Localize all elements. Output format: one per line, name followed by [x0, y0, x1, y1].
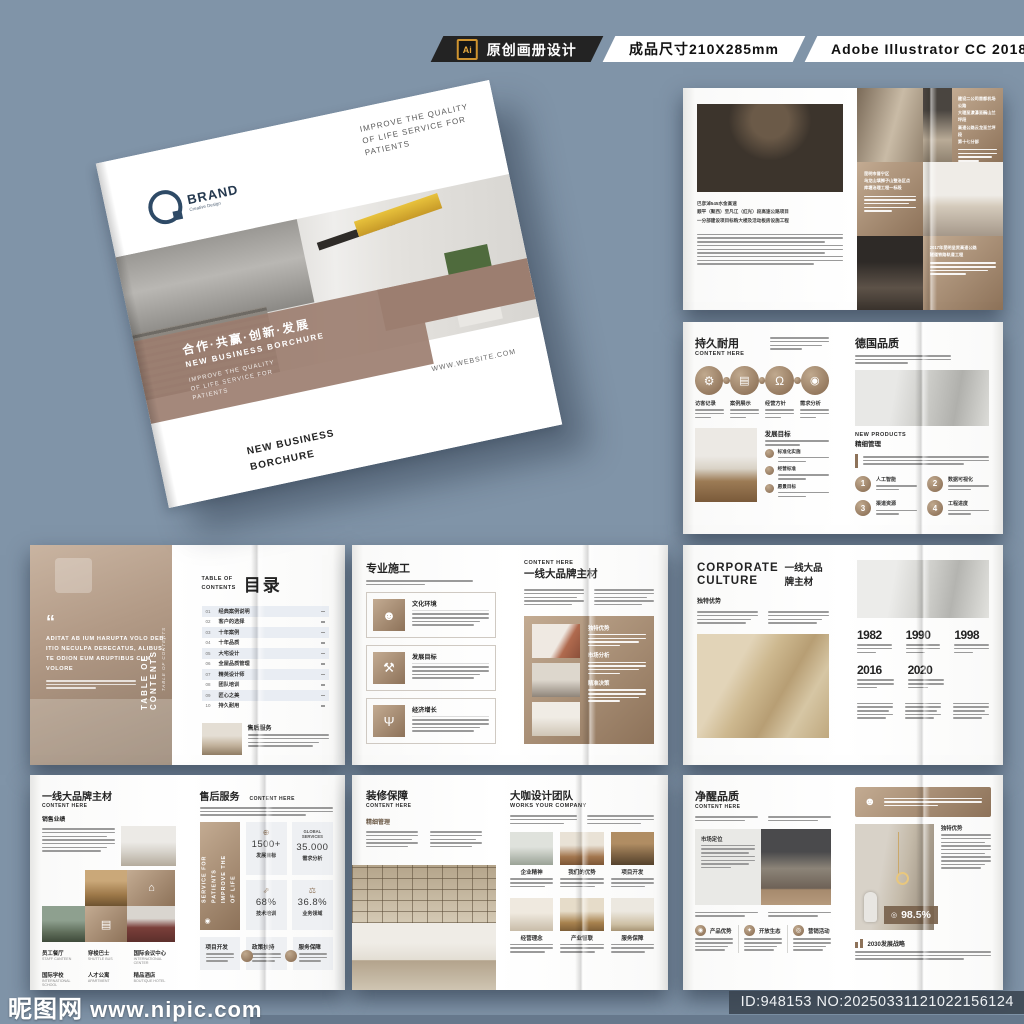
text-line-bar — [524, 593, 584, 595]
team-card: 产业智联 — [560, 898, 603, 955]
site-url: www.nipic.com — [90, 997, 262, 1022]
service-vertical-tile: SERVICE FOR PATIENTS IMPROVE THE OF LIFE… — [200, 822, 240, 930]
feature-title: 政策扶持 — [252, 943, 281, 951]
text-line-bar — [864, 203, 909, 205]
feature-box: ☻ 文化环境 — [366, 592, 496, 638]
text-line-bar — [430, 842, 482, 844]
text-line-bar — [876, 513, 899, 515]
site-watermark: 昵图网 www.nipic.com — [8, 989, 262, 1024]
toc-item[interactable]: 01经典案例说明 — [202, 606, 330, 617]
text-line-bar — [768, 816, 831, 818]
projects-left-page: 巴彦淖545水金高速 顺平（聚西）至凡江（红光）段高速公路项目 一分部建设项目标… — [683, 88, 857, 310]
leaf-icon: ✦ — [744, 925, 755, 936]
text-line-bar — [524, 604, 572, 606]
text-line-bar — [510, 815, 577, 817]
timeline-year: 2016 — [857, 663, 894, 677]
text-line-bar — [594, 593, 654, 595]
text-line-bar — [857, 687, 877, 689]
card-photo — [560, 898, 603, 931]
text-line-bar — [954, 652, 973, 654]
text-line-bar — [248, 734, 330, 736]
culture-title-en: CORPORATE CULTURE — [697, 562, 779, 588]
toc-item[interactable]: 07精英设计师 — [202, 669, 330, 680]
text-line-bar — [958, 153, 997, 155]
text-line-bar — [695, 915, 745, 917]
text-line-bar — [770, 337, 829, 339]
quality-feature: 营销活动 — [808, 927, 830, 935]
text-line-bar — [941, 845, 991, 847]
text-line-bar — [770, 348, 802, 350]
home-icon: ⌂ — [127, 870, 175, 906]
text-line-bar — [930, 262, 996, 264]
toc-page-number — [321, 621, 325, 623]
team-card: 经营理念 — [510, 898, 553, 955]
goal-item-bars — [778, 457, 829, 462]
construction-title: 专业施工 — [366, 560, 496, 576]
box-bars — [412, 666, 489, 679]
text-line-bar — [594, 600, 654, 602]
text-line-bar — [857, 717, 886, 719]
text-line-bar — [730, 413, 759, 415]
text-line-bar — [695, 417, 711, 419]
toc-item-number: 04 — [206, 640, 219, 645]
text-line-bar — [510, 886, 545, 888]
text-line-bar — [857, 683, 894, 685]
toc-item[interactable]: 02客户的选择 — [202, 617, 330, 628]
right-subhead: 独特优势 — [941, 824, 991, 832]
text-line-bar — [200, 811, 334, 813]
text-line-bar — [588, 645, 620, 647]
text-line-bar — [953, 714, 989, 716]
toc-item-number: 07 — [206, 672, 219, 677]
feature-box: Ψ 经济增长 — [366, 698, 496, 744]
text-line-bar — [768, 622, 817, 624]
facility-en: INTERNATIONAL CENTER — [134, 957, 176, 965]
toc-item-label: 全屋品质管理 — [219, 660, 322, 667]
toc-page-number — [321, 632, 325, 634]
label-bars — [765, 409, 794, 418]
goal-label: 标准化实施 — [778, 449, 829, 455]
text-line-bar — [412, 677, 474, 679]
col-bars — [594, 587, 654, 608]
text-line-bar — [701, 848, 755, 850]
text-line-bar — [412, 727, 480, 729]
goal-dot-icon — [765, 484, 774, 493]
spread-guarantee-team: 装修保障 CONTENT HERE 精细管理 大咖设计团队 WORKS YOUR… — [352, 775, 668, 990]
trophy-icon: Ψ — [373, 705, 405, 737]
text-line-bar — [697, 260, 843, 262]
toc-item-number: 10 — [206, 703, 219, 708]
text-line-bar — [697, 622, 746, 624]
site-name: 昵图网 — [8, 996, 83, 1023]
intro-bars — [855, 355, 951, 364]
text-line-bar — [941, 860, 991, 862]
numbered-label: 渠道资源 — [876, 500, 917, 507]
col-bars — [768, 910, 831, 920]
panel-label: 市场定位 — [701, 835, 755, 843]
feature-bars — [252, 953, 281, 962]
spread-construction: 专业施工 ☻ 文化环境 ⚒ 发展目标 Ψ 经济增长 — [352, 545, 668, 765]
headset-icon: Ω — [765, 366, 793, 395]
text-line-bar — [958, 149, 997, 151]
toc-item-label: 客户的选择 — [219, 618, 322, 625]
software-label: Adobe Illustrator CC 2018 — [831, 41, 1024, 57]
german-quality-title: 德国品质 — [855, 335, 989, 351]
text-line-bar — [930, 270, 988, 272]
numbered-label: 人工智能 — [876, 476, 917, 483]
toc-item-number: 03 — [206, 630, 219, 635]
facility-en: BOUTIQUE HOTEL — [134, 979, 176, 983]
spread-projects: 巴彦淖545水金高速 顺平（聚西）至凡江（红光）段高速公路项目 一分部建设项目标… — [683, 88, 1003, 310]
feature-tile: 项目开发 — [200, 937, 241, 970]
toc-vertical-title: TABLE OF CONTENTS — [140, 600, 158, 710]
timeline-year: 1982 — [857, 628, 892, 642]
text-line-bar — [954, 644, 989, 646]
text-line-bar — [953, 717, 982, 719]
gear-icon: ⚙ — [695, 366, 723, 395]
text-line-bar — [697, 234, 843, 236]
text-line-bar — [695, 820, 745, 822]
card-caption: 经营理念 — [510, 934, 553, 942]
circle-label: 需求分析 — [800, 400, 829, 407]
text-line-bar — [793, 942, 831, 944]
text-line-bar — [252, 957, 281, 959]
text-line-bar — [855, 355, 951, 357]
text-line-bar — [366, 839, 412, 841]
text-line-bar — [695, 816, 758, 818]
toc-right-page: TABLE OF CONTENTS 目录 01经典案例说明 02客户的选择 03… — [172, 545, 346, 765]
cover-bottom-title: NEW BUSINESS BORCHURE — [245, 426, 339, 476]
intro-text-bars — [770, 335, 829, 357]
facility-cn: 人才公寓 — [88, 971, 130, 979]
ceiling-lamp — [55, 558, 92, 593]
globe-icon: ⊕ — [250, 829, 283, 837]
text-line-bar — [778, 474, 829, 476]
text-line-bar — [697, 256, 843, 258]
number-circle: 3 — [855, 500, 871, 516]
text-line-bar — [744, 938, 782, 940]
ribbon-software: Adobe Illustrator CC 2018 — [805, 36, 1024, 62]
text-line-bar — [697, 241, 825, 243]
stat-head: GLOBAL SERVICES — [296, 829, 329, 840]
toc-label: TABLE OF CONTENTS — [202, 575, 236, 592]
toc-item[interactable]: 03十年案例 — [202, 627, 330, 638]
text-line-bar — [366, 835, 418, 837]
text-line-bar — [248, 745, 313, 747]
text-line-bar — [510, 882, 553, 884]
text-line-bar — [863, 460, 989, 462]
text-line-bar — [200, 807, 334, 809]
panel-bars — [701, 845, 755, 869]
stat-tile: ⊕ 1500+ 发展目标 — [246, 822, 287, 875]
text-line-bar — [252, 960, 275, 962]
footer-col-bars — [953, 701, 989, 722]
bedroom-photo — [923, 162, 1003, 236]
text-line-bar — [248, 738, 330, 740]
text-line-bar — [701, 863, 749, 865]
score-badge: ◎ 98.5% — [884, 906, 938, 924]
text-line-bar — [800, 417, 816, 419]
text-line-bar — [695, 912, 758, 914]
interior-photo-2 — [532, 663, 580, 697]
toc-item-number: 05 — [206, 651, 219, 656]
brand-subhead: 销售业绩 — [42, 814, 176, 823]
text-line-bar — [695, 946, 728, 948]
col-bars — [768, 609, 829, 626]
toc-item[interactable]: 04十年品质 — [202, 638, 330, 649]
text-line-bar — [701, 860, 755, 862]
feature-bars — [695, 938, 733, 951]
toc-item[interactable]: 09匠心之美 — [202, 690, 330, 701]
toc-item[interactable]: 06全屋品质管理 — [202, 659, 330, 670]
astronaut-figure — [864, 892, 877, 922]
text-line-bar — [611, 882, 654, 884]
staircase-photo — [855, 370, 989, 426]
kitchen-photo — [127, 906, 175, 942]
text-line-bar — [560, 951, 595, 953]
durable-right-page: 德国品质 NEW PRODUCTS 精细管理 1 人工智能 2 数据可视化 3 — [841, 322, 1003, 534]
culture-subhead: 独特优势 — [697, 596, 829, 605]
toc-item-label: 精英设计师 — [219, 671, 322, 678]
badge-value: 98.5% — [901, 909, 931, 921]
facility-en: INTERNATIONAL SCHOOL — [42, 979, 84, 987]
text-line-bar — [697, 237, 843, 239]
spread-brand-service: 一线大品牌主材 CONTENT HERE 销售业绩 ⌂ ▤ 员工餐厅STAFF … — [30, 775, 345, 990]
fingerprint-icon: ◉ — [801, 366, 829, 395]
toc-page-number — [321, 653, 325, 655]
construction-left-page: 专业施工 ☻ 文化环境 ⚒ 发展目标 Ψ 经济增长 — [352, 545, 510, 765]
text-line-bar — [594, 589, 654, 591]
text-line-bar — [594, 604, 642, 606]
text-line-bar — [884, 805, 938, 807]
panel-bars — [588, 634, 646, 647]
text-line-bar — [701, 852, 749, 854]
text-line-bar — [730, 409, 759, 411]
service-title: 售后服务 — [200, 788, 240, 803]
ai-logo-icon: Ai — [457, 39, 478, 60]
text-line-bar — [857, 652, 876, 654]
timeline-year: 1990 — [906, 628, 941, 642]
label-bars — [695, 409, 724, 418]
text-line-bar — [793, 946, 826, 948]
text-line-bar — [697, 252, 825, 254]
sales-bars — [42, 826, 115, 866]
text-line-bar — [42, 847, 107, 849]
dining-room-photo — [697, 104, 843, 192]
strategy-bars — [855, 951, 991, 960]
text-line-bar — [948, 485, 989, 487]
text-line-bar — [412, 666, 489, 668]
spread-culture: CORPORATE CULTURE 一线大品牌主材 独特优势 1982 1990… — [683, 545, 1003, 765]
guarantee-title: 装修保障 — [366, 788, 482, 803]
text-line-bar — [42, 850, 101, 852]
text-line-bar — [941, 867, 981, 869]
text-line-bar — [857, 644, 892, 646]
panel-bars — [588, 689, 646, 702]
text-line-bar — [941, 834, 991, 836]
connector-dot-icon — [723, 377, 730, 384]
text-line-bar — [588, 697, 639, 699]
text-line-bar — [697, 263, 814, 265]
text-line-bar — [524, 589, 584, 591]
culture-title-cn: 一线大品牌主材 — [785, 560, 829, 588]
toc-page-number — [321, 674, 325, 676]
text-line-bar — [588, 638, 646, 640]
text-line-bar — [430, 846, 472, 848]
text-line-bar — [46, 687, 96, 689]
goal-bars — [765, 440, 829, 445]
text-line-bar — [701, 867, 731, 869]
text-line-bar — [908, 679, 945, 681]
team-right-page: 大咖设计团队 WORKS YOUR COMPANY 企业精神 我们的优势 — [496, 775, 668, 990]
goal-dot-icon — [765, 449, 774, 458]
year-bars — [857, 644, 892, 653]
interior-photo-3 — [532, 702, 580, 736]
text-line-bar — [768, 619, 822, 621]
team-title: 大咖设计团队 — [510, 788, 654, 803]
card-caption: 项目开发 — [611, 868, 654, 876]
text-line-bar — [588, 669, 639, 671]
cover-website: WWW.WEBSITE.COM — [431, 348, 517, 373]
white-text-bars — [958, 149, 997, 162]
col-bars — [524, 587, 584, 608]
box-bars — [412, 613, 489, 626]
text-line-bar — [42, 839, 115, 841]
text-line-bar — [778, 478, 806, 480]
facility-cn: 精品酒店 — [134, 971, 176, 979]
text-line-bar — [510, 951, 545, 953]
card-bars — [611, 944, 654, 953]
year-bars — [954, 644, 989, 653]
toc-item-number: 08 — [206, 682, 219, 687]
projects-right-page: 建设二公司首都机场公路 大理至漾濞至巍山兰坪段 高速公路云龙至兰坪段 第十七分部… — [857, 88, 1003, 310]
card-photo — [611, 832, 654, 865]
stat-value: 68% — [250, 897, 283, 908]
text-line-bar — [876, 489, 899, 491]
white-text-bars — [864, 196, 916, 212]
text-line-bar — [588, 673, 620, 675]
text-line-bar — [765, 409, 794, 411]
stat-value: 35.000 — [296, 842, 329, 853]
target-icon: ◎ — [891, 911, 897, 919]
text-line-bar — [611, 878, 654, 880]
text-line-bar — [695, 942, 733, 944]
grid-ceiling — [352, 865, 496, 922]
text-line-bar — [594, 597, 647, 599]
text-line-bar — [770, 345, 822, 347]
text-line-bar — [941, 838, 991, 840]
text-line-bar — [248, 742, 320, 744]
text-line-bar — [366, 584, 425, 586]
text-line-bar — [588, 689, 646, 691]
lounge-photo — [857, 236, 923, 310]
circle-label: 经营方针 — [765, 400, 794, 407]
card-bars — [510, 878, 553, 887]
text-line-bar — [510, 819, 577, 821]
project-block-3-title: 2017年昆明呈贡高速公路 隧道铁路轨道工程 — [930, 244, 996, 258]
hall-photo — [352, 865, 496, 990]
text-line-bar — [560, 886, 595, 888]
toc-item[interactable]: 08团队培训 — [202, 680, 330, 691]
toc-page-number — [321, 611, 325, 613]
text-line-bar — [855, 362, 908, 364]
stairs-room-photo — [695, 428, 757, 502]
text-line-bar — [857, 706, 893, 708]
text-line-bar — [697, 245, 843, 247]
bottom-strip — [250, 1015, 1024, 1024]
stat-value: 1500+ — [250, 839, 283, 850]
card-bars — [611, 878, 654, 887]
text-line-bar — [412, 730, 474, 732]
dark-bedroom-photo — [761, 829, 831, 905]
toc-item-number: 01 — [206, 609, 219, 614]
toc-footer-photo — [202, 723, 242, 755]
text-line-bar — [587, 823, 641, 825]
toc-item-label: 经典案例说明 — [219, 608, 322, 615]
text-line-bar — [930, 266, 996, 268]
robot-icon: ☻ — [864, 796, 876, 808]
numbered-bars — [876, 485, 917, 490]
text-line-bar — [864, 207, 916, 209]
brand-left-page: 一线大品牌主材 CONTENT HERE 销售业绩 ⌂ ▤ 员工餐厅STAFF … — [30, 775, 188, 990]
circle-label: 访客记录 — [695, 400, 724, 407]
box-title: 文化环境 — [412, 599, 489, 611]
text-line-bar — [941, 864, 985, 866]
card-caption: 产业智联 — [560, 934, 603, 942]
toc-item[interactable]: 05大宅设计 — [202, 648, 330, 659]
connector-dot-icon — [794, 377, 801, 384]
interior-photo-1 — [532, 624, 580, 658]
text-line-bar — [863, 456, 989, 458]
cover-tagline: IMPROVE THE QUALITY OF LIFE SERVICE FOR … — [359, 101, 475, 159]
quote-bars — [46, 680, 136, 689]
text-line-bar — [588, 662, 646, 664]
text-line-bar — [905, 706, 941, 708]
toc-vertical-subtitle: TABLE OF CONTENTS — [161, 627, 166, 691]
goal-dot-icon — [765, 466, 774, 475]
toc-item[interactable]: 10持久耐用 — [202, 701, 330, 712]
text-line-bar — [42, 843, 115, 845]
text-line-bar — [430, 839, 476, 841]
goal-title: 发展目标 — [765, 428, 829, 438]
text-line-bar — [510, 823, 564, 825]
text-line-bar — [857, 714, 893, 716]
year-bars — [906, 644, 941, 653]
year-bars — [908, 679, 945, 688]
text-line-bar — [953, 706, 989, 708]
toc-page-number — [321, 695, 325, 697]
text-line-bar — [611, 951, 646, 953]
courtyard-photo — [42, 906, 85, 942]
facility-cn: 国际学校 — [42, 971, 84, 979]
brand-title: 一线大品牌主材 — [42, 788, 176, 803]
text-line-bar — [587, 815, 654, 817]
text-line-bar — [366, 846, 408, 848]
text-line-bar — [793, 949, 823, 951]
text-line-bar — [863, 463, 964, 465]
toc-page-number — [321, 684, 325, 686]
project-block-3: 2017年昆明呈贡高速公路 隧道铁路轨道工程 — [923, 236, 1003, 310]
toc-item-number: 06 — [206, 661, 219, 666]
toc-page-number — [321, 663, 325, 665]
service-vertical-text: SERVICE FOR PATIENTS IMPROVE THE OF LIFE — [200, 849, 239, 903]
sofa-photo — [121, 826, 175, 866]
card-photo — [560, 832, 603, 865]
stat-tile: GLOBAL SERVICES 35.000 需求分析 — [292, 822, 333, 875]
box-bars — [412, 719, 489, 732]
ribbon-product: Ai 原创画册设计 — [431, 36, 604, 62]
text-line-bar — [412, 674, 480, 676]
